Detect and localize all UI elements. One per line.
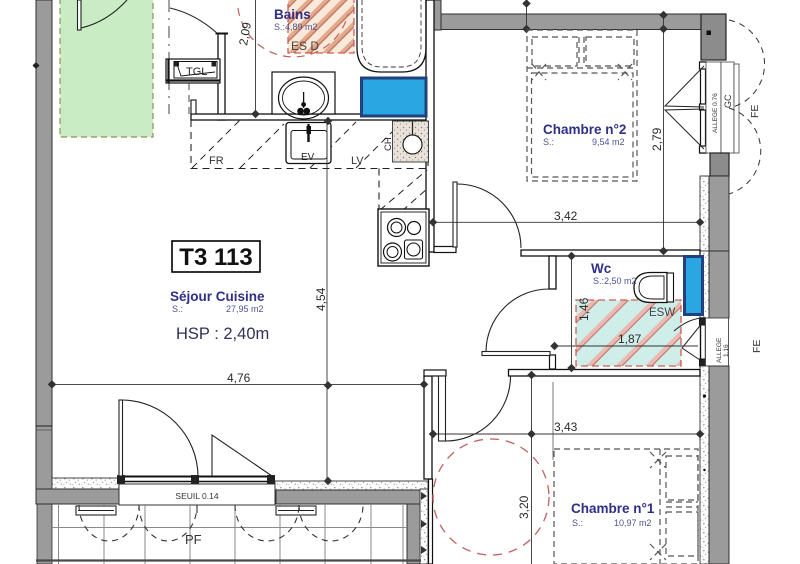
svg-text:4,54: 4,54 xyxy=(314,287,328,311)
svg-text:HSP : 2,40m: HSP : 2,40m xyxy=(176,325,269,343)
svg-text:1,46: 1,46 xyxy=(577,297,591,321)
svg-text:FE: FE xyxy=(749,105,761,118)
svg-text:9,54 m2: 9,54 m2 xyxy=(592,137,625,147)
svg-text:SEUIL 0.14: SEUIL 0.14 xyxy=(175,491,218,501)
svg-text:3,42: 3,42 xyxy=(554,209,578,223)
svg-text:3,43: 3,43 xyxy=(554,420,578,434)
svg-text:Séjour Cuisine: Séjour Cuisine xyxy=(170,289,265,304)
svg-text:GC: GC xyxy=(723,94,733,108)
svg-text:EV: EV xyxy=(301,152,315,163)
svg-text:S.:2,50 m2: S.:2,50 m2 xyxy=(593,276,637,286)
svg-text:LV: LV xyxy=(351,155,364,167)
svg-text:4,76: 4,76 xyxy=(227,371,251,385)
svg-text:Chambre n°2: Chambre n°2 xyxy=(543,122,626,137)
svg-text:T3 113: T3 113 xyxy=(179,244,252,271)
svg-text:Chambre n°1: Chambre n°1 xyxy=(571,501,655,516)
svg-text:TGL: TGL xyxy=(186,66,207,78)
svg-text:S.:4,89 m2: S.:4,89 m2 xyxy=(274,22,318,32)
svg-text:1,87: 1,87 xyxy=(618,332,642,346)
svg-text:ALLEGE 0.76: ALLEGE 0.76 xyxy=(712,93,719,133)
svg-text:1.16: 1.16 xyxy=(723,344,730,357)
svg-text:10,97 m2: 10,97 m2 xyxy=(614,518,652,528)
svg-text:S.:: S.: xyxy=(172,304,183,314)
svg-text:Wc: Wc xyxy=(591,261,612,276)
svg-text:2,79: 2,79 xyxy=(650,127,664,151)
svg-text:FE: FE xyxy=(751,340,763,353)
svg-text:S.:: S.: xyxy=(543,137,554,147)
svg-text:CH: CH xyxy=(383,137,394,151)
svg-text:ALLEGE: ALLEGE xyxy=(716,337,723,363)
svg-text:PF: PF xyxy=(185,532,202,547)
svg-text:FR: FR xyxy=(209,155,224,167)
svg-text:S.:: S.: xyxy=(572,518,583,528)
svg-text:27,95 m2: 27,95 m2 xyxy=(226,304,264,314)
svg-text:ES D: ES D xyxy=(291,39,319,53)
svg-text:3,20: 3,20 xyxy=(517,495,531,519)
svg-text:ESW: ESW xyxy=(649,307,675,319)
svg-text:Bains: Bains xyxy=(274,7,311,22)
